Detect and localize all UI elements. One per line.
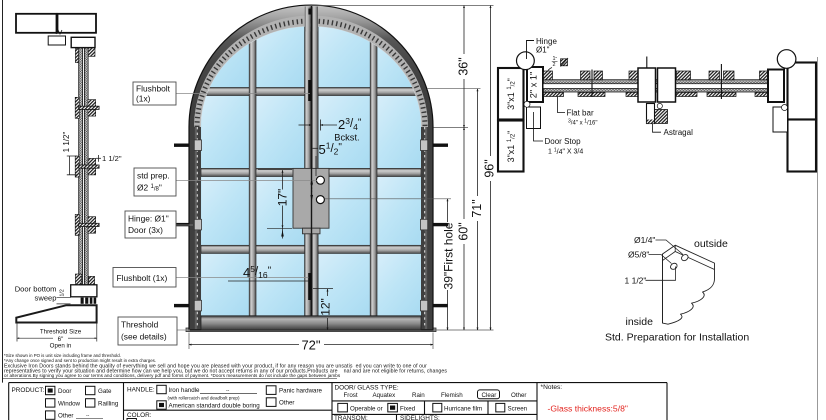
svg-text:Door (3x): Door (3x) [128,225,163,235]
svg-text:sweep: sweep [35,293,57,302]
svg-text:SIDELIGHTS:: SIDELIGHTS: [400,415,440,420]
svg-text:Door: Door [58,388,71,395]
svg-text:Other: Other [58,413,73,420]
svg-text:Other: Other [279,400,294,407]
svg-text:Gate: Gate [98,388,112,395]
svg-text:Fixed: Fixed [400,405,416,412]
svg-text:Clear: Clear [482,392,497,399]
svg-text:inside: inside [626,316,654,328]
svg-text:std prep.: std prep. [137,170,170,180]
svg-text:96": 96" [483,159,497,177]
svg-text:Std. Preparation for Installat: Std. Preparation for Installation [605,332,749,344]
svg-text:Hurricane film: Hurricane film [444,405,482,412]
svg-text:Iron handle: Iron handle [169,387,201,394]
svg-text:1 1/2": 1 1/2" [102,154,122,163]
svg-text:Flat bar: Flat bar [567,108,594,117]
svg-text:Flushbolt (1x): Flushbolt (1x) [117,273,168,283]
svg-text:Astragal: Astragal [664,128,694,137]
svg-text:Rain: Rain [412,392,425,399]
svg-text:Threshold Size: Threshold Size [40,329,82,336]
svg-text:(see details): (see details) [121,332,167,342]
svg-text:1 1/2": 1 1/2" [62,132,71,153]
svg-text:Window: Window [58,400,81,407]
svg-text:1 1/4" X 3/4: 1 1/4" X 3/4 [548,148,583,156]
svg-text:72": 72" [301,338,320,353]
svg-text:Flushbolt: Flushbolt [136,84,171,94]
svg-text:Ø1/4": Ø1/4" [634,235,655,245]
svg-text:Open in: Open in [50,342,72,349]
svg-text:Operable or: Operable or [350,405,383,412]
svg-text:(with rollercatch and deadbolt: (with rollercatch and deadbolt prep) [168,395,240,400]
svg-text:*Notes:: *Notes: [541,384,563,391]
svg-text:Other: Other [511,392,526,399]
svg-text:American standard double borin: American standard double boring [169,403,261,410]
svg-text:12": 12" [319,298,333,316]
svg-text:DOOR/ GLASS TYPE:: DOOR/ GLASS TYPE: [335,384,399,391]
svg-text:1/2: 1/2 [60,289,66,296]
svg-text:Bckst.: Bckst. [334,133,359,143]
svg-text:Panic hardware: Panic hardware [279,388,323,395]
svg-text:17": 17" [276,189,290,207]
svg-text:Screen: Screen [508,405,528,412]
svg-text:60": 60" [457,222,471,240]
svg-text:Ø1": Ø1" [536,46,550,55]
svg-text:1 1/2": 1 1/2" [625,276,647,286]
svg-text:--: -- [226,388,230,394]
svg-text:Aquatex: Aquatex [373,392,397,399]
svg-text:39"First hole: 39"First hole [442,222,456,289]
svg-text:PRODUCT:: PRODUCT: [12,387,45,394]
svg-text:--: -- [86,413,90,419]
svg-text:outside: outside [694,238,728,250]
svg-text:Hinge: Ø1": Hinge: Ø1" [128,213,169,223]
svg-text:Ø5/8": Ø5/8" [628,250,649,260]
svg-text:(1x): (1x) [136,94,151,104]
svg-text:45/16": 45/16" [243,264,272,280]
svg-text:36": 36" [457,57,471,75]
svg-text:Ø2 1/8": Ø2 1/8" [137,182,162,192]
svg-text:TRANSOM:: TRANSOM: [334,415,368,420]
svg-text:or alterations.By signing you: or alterations.By signing you agree to o… [4,373,341,378]
svg-text:-Glass thickness:5/8": -Glass thickness:5/8" [548,403,628,413]
svg-text:Threshold: Threshold [121,320,159,330]
svg-text:Door Stop: Door Stop [545,137,582,146]
svg-text:2" x 1": 2" x 1" [529,72,539,98]
svg-text:3/4" x 1/16": 3/4" x 1/16" [568,118,598,126]
svg-text:Railling: Railling [98,400,119,407]
svg-text:2: 2 [553,62,556,68]
svg-text:HANDLE:: HANDLE: [127,387,155,394]
svg-text:Door bottom: Door bottom [15,284,57,293]
svg-text:Frost: Frost [344,392,358,399]
svg-text:Flemish: Flemish [441,392,463,399]
svg-text:71": 71" [470,199,484,217]
